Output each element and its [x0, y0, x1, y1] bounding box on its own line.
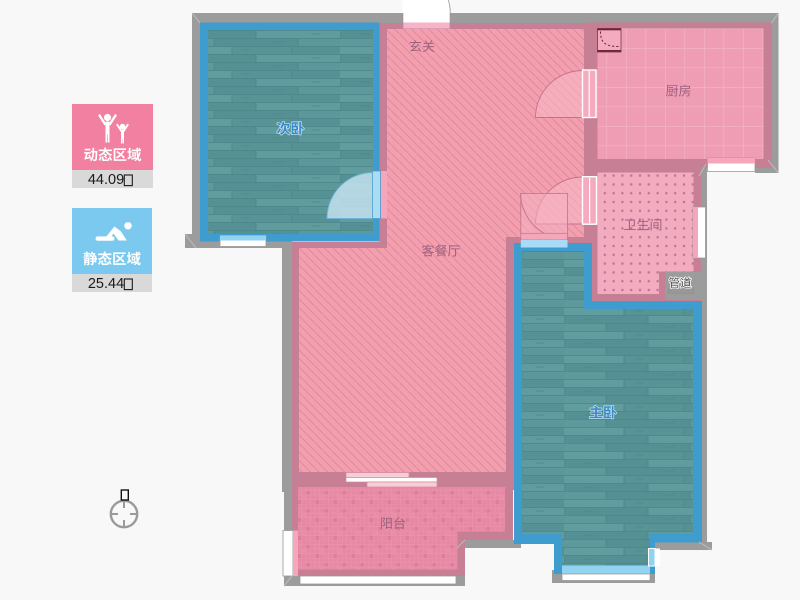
svg-text:25.44: 25.44 [88, 276, 124, 292]
svg-text:44.09: 44.09 [88, 172, 124, 188]
